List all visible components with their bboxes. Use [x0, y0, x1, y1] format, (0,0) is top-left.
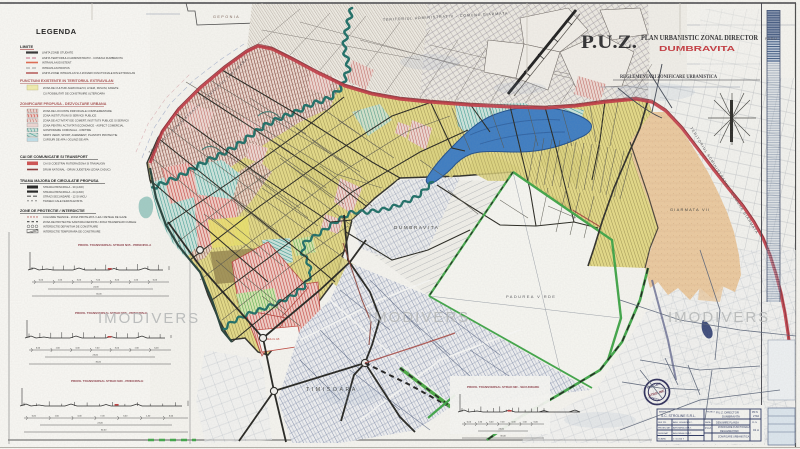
svg-text:IMODIVERS: IMODIVERS [368, 309, 470, 326]
svg-text:IMODIVERS: IMODIVERS [98, 310, 200, 327]
svg-text:IMODIVERS: IMODIVERS [668, 309, 770, 326]
